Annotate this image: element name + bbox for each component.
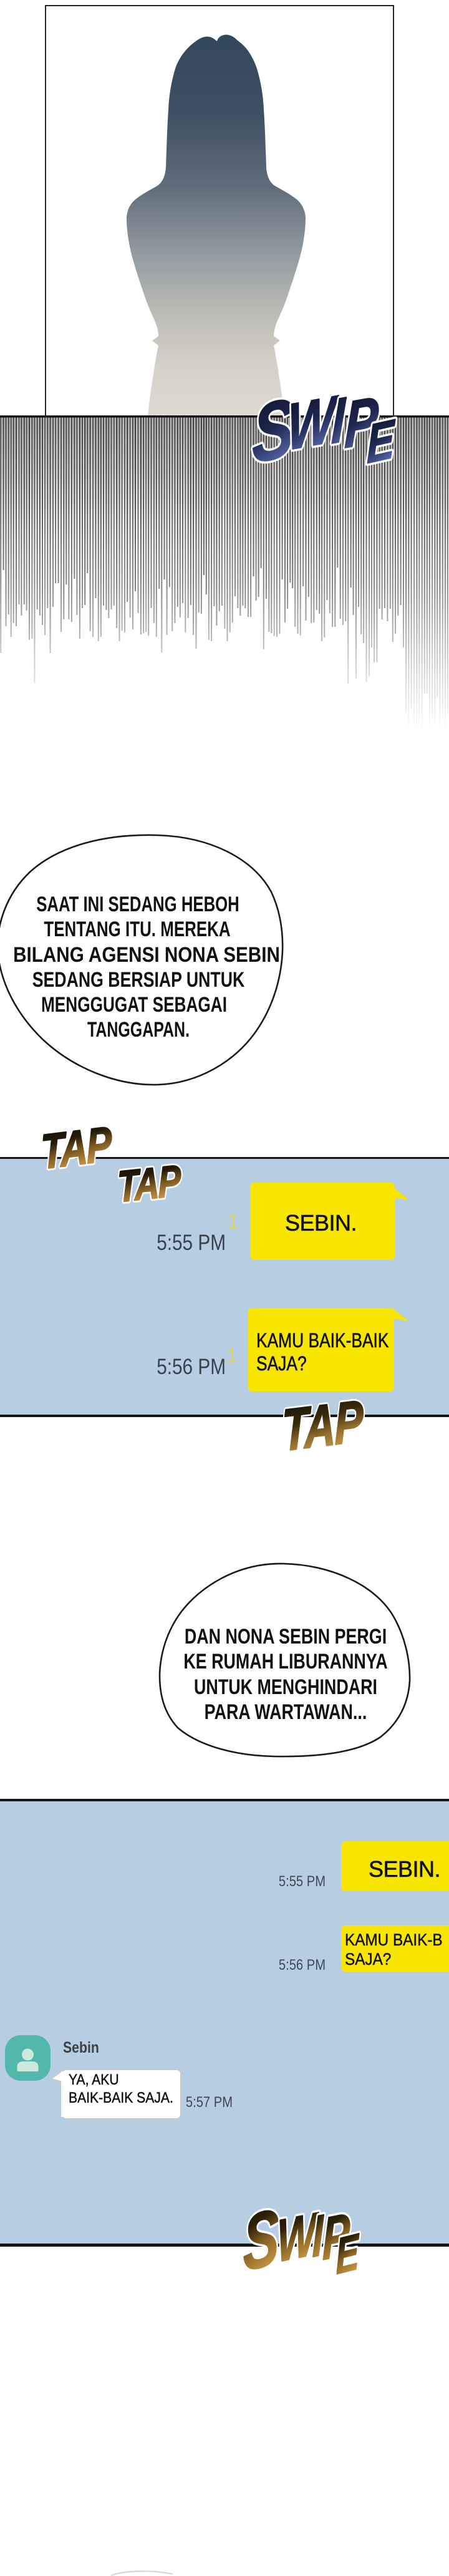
svg-text:E: E [335,2222,360,2285]
svg-text:TAP: TAP [40,1116,113,1179]
svg-text:S: S [243,2202,279,2288]
svg-text:E: E [367,407,395,475]
svg-text:TAP: TAP [117,1156,182,1212]
svg-text:TAP: TAP [281,1390,364,1463]
